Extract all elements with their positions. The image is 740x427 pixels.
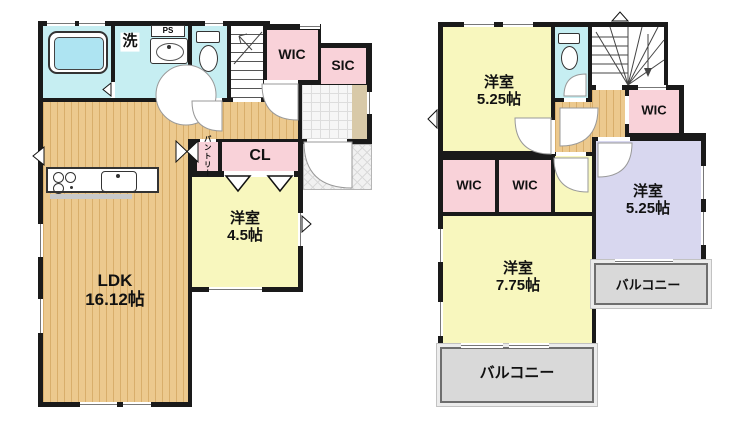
label-laundry: 洗 — [120, 33, 139, 52]
ps-box: PS — [151, 25, 185, 37]
label-bedroom-nw: 洋室5.25帖 — [477, 75, 521, 109]
label-bedroom-east: 洋室5.25帖 — [626, 184, 670, 218]
stairs-1f — [231, 26, 263, 98]
window — [438, 229, 443, 262]
stove-burner — [53, 183, 64, 194]
door-opening — [551, 120, 555, 154]
door-opening — [556, 152, 586, 156]
toilet-bowl-1f — [199, 45, 218, 72]
door-opening — [598, 137, 630, 141]
room-bedroom-south-nook — [555, 156, 592, 212]
label-wic-1f: WIC — [278, 47, 305, 63]
label-balcony-east: バルコニー — [616, 279, 681, 294]
door-opening — [596, 85, 622, 90]
window — [509, 343, 549, 348]
washbasin-faucet — [167, 45, 171, 49]
window — [300, 24, 320, 29]
counter-shadow — [50, 194, 132, 199]
ps-label: PS — [163, 26, 174, 35]
door-opening — [194, 98, 222, 102]
toilet-tank-1f — [196, 31, 220, 43]
sink-faucet — [116, 174, 120, 178]
window — [38, 299, 43, 333]
door-opening — [111, 82, 115, 98]
label-wic-east: WIC — [641, 104, 666, 119]
label-sic: SIC — [331, 58, 354, 74]
window — [438, 302, 443, 336]
entry-step — [352, 85, 367, 139]
window — [79, 21, 105, 26]
label-bedroom-4-5: 洋室4.5帖 — [227, 211, 263, 245]
door-opening — [564, 98, 586, 102]
window — [638, 85, 666, 90]
window — [701, 212, 706, 245]
door-opening — [264, 80, 298, 84]
window — [123, 402, 151, 407]
window — [503, 22, 533, 27]
label-ldk: LDK16.12帖 — [85, 271, 145, 309]
door-opening — [233, 98, 261, 102]
room-ldk — [43, 102, 188, 402]
hallway-2f-under-stairs — [592, 90, 625, 137]
entry-porch — [303, 144, 372, 190]
toilet-bowl-2f — [561, 46, 578, 70]
window — [80, 402, 117, 407]
hallway-2f — [555, 102, 592, 152]
window — [205, 21, 223, 26]
stairs-2f — [592, 27, 664, 85]
label-bedroom-south: 洋室7.75帖 — [496, 261, 540, 295]
bathtub-water — [54, 37, 104, 70]
label-cl: CL — [249, 147, 270, 165]
door-opening — [224, 171, 294, 177]
window — [209, 287, 262, 292]
window — [367, 92, 372, 114]
hallway-1f-upper — [267, 84, 298, 102]
hallway-1f — [188, 102, 298, 139]
window — [38, 224, 43, 257]
label-balcony-south: バルコニー — [480, 366, 555, 383]
window — [464, 22, 494, 27]
label-wic-b: WIC — [512, 179, 537, 194]
label-wic-a: WIC — [456, 179, 481, 194]
label-pantry: パントリー — [203, 135, 211, 178]
window — [615, 259, 673, 263]
window — [298, 213, 303, 246]
stove-dot — [70, 186, 73, 189]
toilet-tank-2f — [558, 33, 580, 44]
window — [47, 21, 75, 26]
entry-tile — [302, 85, 352, 139]
door-opening — [307, 139, 347, 144]
stove-burner — [53, 172, 64, 183]
stove-burner — [65, 172, 76, 183]
door-opening — [625, 96, 629, 124]
floorplan-canvas: PS — [0, 0, 740, 427]
window — [461, 343, 503, 348]
window — [701, 166, 706, 199]
